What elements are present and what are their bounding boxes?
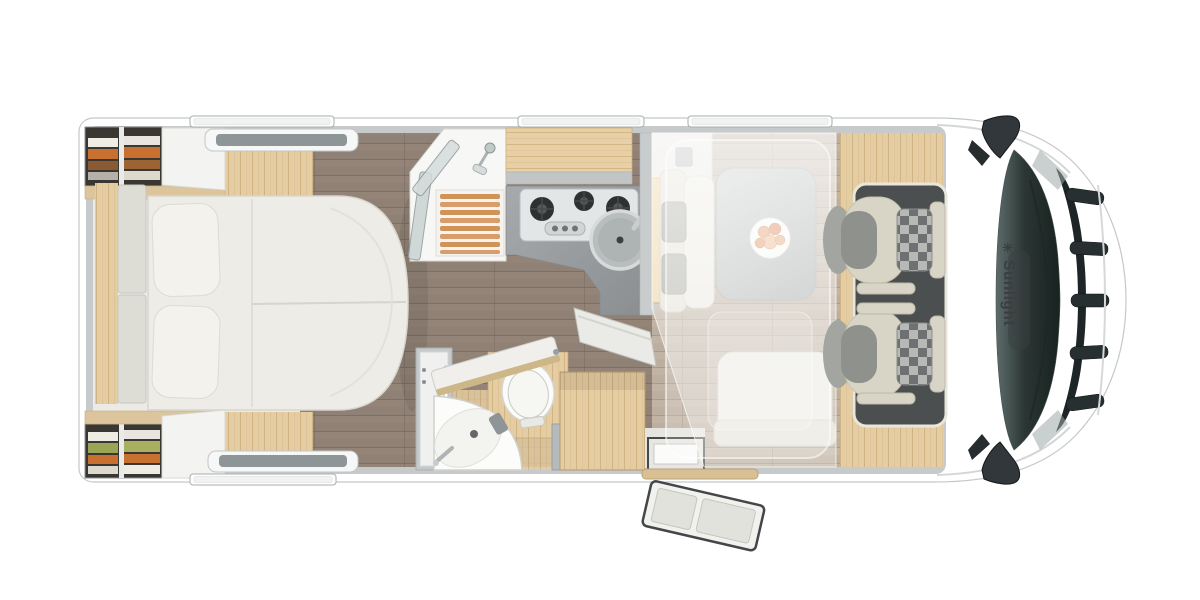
window	[190, 116, 334, 127]
window	[518, 116, 644, 127]
headrest-checkered	[897, 209, 932, 271]
pillow-top	[151, 203, 220, 297]
clothes	[88, 432, 118, 441]
armrest	[857, 303, 915, 314]
cab-seat-driver	[823, 197, 945, 283]
sun-logo-icon: ✳	[1000, 242, 1015, 253]
window	[190, 474, 336, 485]
overhead-cabinet	[506, 128, 632, 172]
wardrobe-bottom-left	[85, 424, 162, 478]
window	[688, 116, 832, 127]
wood-wall-panel-top	[222, 148, 313, 196]
skylight-top	[205, 129, 358, 151]
entry-threshold	[642, 469, 758, 479]
floorplan-canvas: ✳ Sunlight	[0, 0, 1200, 600]
brand-text: Sunlight	[1000, 260, 1017, 326]
headboard-pad-top	[118, 185, 146, 293]
cab	[823, 133, 946, 467]
cab-seat-passenger	[823, 311, 945, 397]
entry-door-open	[642, 480, 765, 551]
armrest	[857, 393, 915, 404]
burner	[530, 197, 554, 221]
pillow-bottom	[151, 305, 220, 399]
motorhome-floorplan: ✳ Sunlight	[0, 0, 1200, 600]
armrest	[857, 283, 915, 294]
clothes	[88, 138, 118, 147]
headboard-pad-bottom	[118, 295, 146, 403]
wardrobe-top-left	[85, 127, 162, 186]
skylight-bottom	[208, 451, 358, 472]
drop-down-bed-overlay	[652, 133, 836, 467]
headboard-wood	[95, 183, 118, 404]
burner	[574, 191, 594, 211]
